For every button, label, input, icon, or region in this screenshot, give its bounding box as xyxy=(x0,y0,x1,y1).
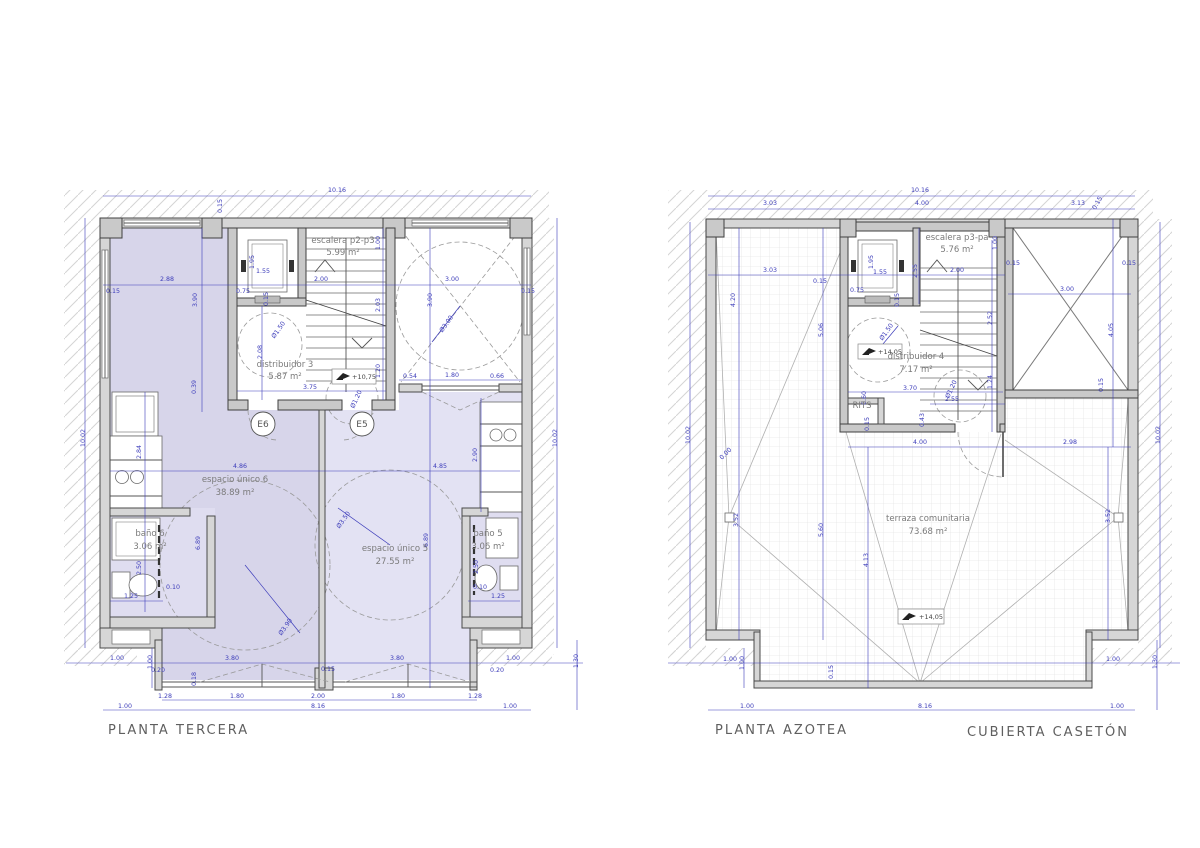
dimension-text: 10.16 xyxy=(911,187,929,194)
dimension-text: 0.15 xyxy=(813,278,827,285)
dimension-text: 1.20 xyxy=(375,364,382,378)
dimension-text: 0.75 xyxy=(850,287,864,294)
dimension-text: 1.00 xyxy=(1110,703,1124,710)
dimension-text: 1.00 xyxy=(118,703,132,710)
dimension-text: 10.02 xyxy=(1155,426,1162,444)
dimension-text: 0.66 xyxy=(490,373,504,380)
dimension-text: 3.90 xyxy=(192,293,199,307)
dimension-text: 2.50 xyxy=(136,561,143,575)
dimension-text: 1.25 xyxy=(491,593,505,600)
dimension-text: 2.00 xyxy=(314,276,328,283)
room-label: espacio único 6 xyxy=(202,475,268,485)
dimension-text: 1.24 xyxy=(987,375,994,389)
dimension-text: 10.02 xyxy=(552,429,559,447)
dimension-text: 4.85 xyxy=(433,463,447,470)
dimension-text: 1.00 xyxy=(739,656,746,670)
dimension-text: 1.00 xyxy=(723,656,737,663)
roof-drain-right xyxy=(1114,513,1123,522)
dimension-text: 3.03 xyxy=(763,267,777,274)
dimension-text: 3.52 xyxy=(1105,509,1112,523)
dimension-text: 0.15 xyxy=(321,666,335,673)
room-label: baño 6 xyxy=(135,529,164,539)
room-label: 27.55 m² xyxy=(376,557,415,567)
level-value: +10,75 xyxy=(352,373,376,381)
dimension-text: 0.15 xyxy=(1006,260,1020,267)
dimension-text: 4.00 xyxy=(913,439,927,446)
dimension-text: 3.52 xyxy=(733,513,740,527)
room-label: 5.87 m² xyxy=(268,372,301,382)
room-label: 38.89 m² xyxy=(216,488,255,498)
dimension-text: 2.84 xyxy=(136,445,143,459)
entry-label-e5: E5 xyxy=(356,420,367,430)
dimension-text: 10.02 xyxy=(80,429,87,447)
dimension-text: 4.13 xyxy=(863,553,870,567)
dimension-text: Ø1.50 xyxy=(878,322,895,342)
dimension-text: 1.80 xyxy=(445,372,459,379)
room-label: escalera p2-p3 xyxy=(311,236,374,246)
dimension-text: 8.16 xyxy=(918,703,932,710)
room-label: distribuidor 4 xyxy=(888,352,945,362)
dimension-text: 1.00 xyxy=(1106,656,1120,663)
dimension-text: 2.03 xyxy=(375,298,382,312)
dimension-text: 5.06 xyxy=(818,323,825,337)
dimension-text: 1.00 xyxy=(506,655,520,662)
room-label: 7.17 m² xyxy=(899,365,932,375)
dimension-text: 3.13 xyxy=(1071,200,1085,207)
dimension-text: 1.80 xyxy=(391,693,405,700)
dimension-text: 0.15 xyxy=(1122,260,1136,267)
dimension-text: 0.15 xyxy=(864,417,871,431)
plan-title-azotea: PLANTA AZOTEA xyxy=(715,723,848,738)
dimension-text: 1.55 xyxy=(256,268,270,275)
dimension-text: 3.00 xyxy=(1060,286,1074,293)
dimension-text: 2.55 xyxy=(912,264,919,278)
level-marker-azotea-2: +14,05 xyxy=(898,609,944,624)
room-label: escalera p3-pa xyxy=(925,233,988,243)
room-label: 3.06 m² xyxy=(471,542,504,552)
dimension-text: 2.00 xyxy=(311,693,325,700)
dimension-text: 4.05 xyxy=(1108,323,1115,337)
dimension-text: 0.15 xyxy=(106,288,120,295)
plan-title-caseton: CUBIERTA CASETÓN xyxy=(967,724,1129,740)
dimension-text: 3.75 xyxy=(303,384,317,391)
dimension-text: 0.15 xyxy=(521,288,535,295)
room-label: 3.06 m² xyxy=(133,542,166,552)
dimension-text: 6.89 xyxy=(195,536,202,550)
architectural-plan-canvas: E6 E5 +10,75 xyxy=(0,0,1200,848)
dimension-text: 10.02 xyxy=(685,426,692,444)
dimension-text: 0.15 xyxy=(1098,378,1105,392)
dimension-text: 1.95 xyxy=(249,255,256,269)
dimension-text: 3.03 xyxy=(763,200,777,207)
dimension-text: 0.15 xyxy=(828,665,835,679)
dimension-text: 0.15 xyxy=(217,199,224,213)
entry-label-e6: E6 xyxy=(257,420,269,430)
dimension-text: 3.80 xyxy=(390,655,404,662)
dimension-text: 2.50 xyxy=(473,560,480,574)
dimension-text: 4.86 xyxy=(233,463,247,470)
kitchen-right xyxy=(480,402,522,512)
dimension-text: 0.20 xyxy=(490,667,504,674)
room-label: 5.76 m² xyxy=(940,245,973,255)
dimension-text: 1.25 xyxy=(124,593,138,600)
dimension-text: 1.00 xyxy=(110,655,124,662)
dimension-text: 1.95 xyxy=(868,255,875,269)
room-label: distribuidor 3 xyxy=(257,360,314,370)
dimension-text: 0.54 xyxy=(403,373,417,380)
dimension-text: 1.00 xyxy=(992,236,999,250)
dimension-text: 1.55 xyxy=(873,269,887,276)
room-label: 73.68 m² xyxy=(909,527,948,537)
dimension-text: 3.00 xyxy=(445,276,459,283)
room-label: baño 5 xyxy=(473,529,502,539)
dimension-text: 1.00 xyxy=(503,703,517,710)
dimension-text: 1.00 xyxy=(375,236,382,250)
dimension-text: 2.90 xyxy=(472,448,479,462)
dimension-text: 2.98 xyxy=(1063,439,1077,446)
dimension-text: 0.43 xyxy=(919,413,926,427)
dimension-text: 0.20 xyxy=(151,667,165,674)
dimension-text: 2.08 xyxy=(257,345,264,359)
dimension-text: 1.28 xyxy=(468,693,482,700)
dimension-text: 0.10 xyxy=(166,584,180,591)
dimension-text: 10.16 xyxy=(328,187,346,194)
dimension-text: 8.16 xyxy=(311,703,325,710)
dimension-text: 1.30 xyxy=(1152,655,1159,669)
level-value: +14,05 xyxy=(919,613,943,621)
room-label: 5.99 m² xyxy=(326,248,359,258)
dimension-text: 1.28 xyxy=(158,693,172,700)
dimension-text: 0.18 xyxy=(191,672,198,686)
floor-plan-sheet: E6 E5 +10,75 xyxy=(0,0,1200,848)
dimension-text: 1.80 xyxy=(230,693,244,700)
plan-title-tercera: PLANTA TERCERA xyxy=(108,723,249,738)
dimension-text: 2.52 xyxy=(987,311,994,325)
room-label: terraza comunitaria xyxy=(886,514,970,524)
dimension-text: 3.70 xyxy=(903,385,917,392)
level-marker-p3: +10,75 xyxy=(332,369,376,384)
plan-tercera: E6 E5 +10,75 xyxy=(64,187,583,738)
dimension-text: 0.39 xyxy=(191,380,198,394)
dimension-text: 3.90 xyxy=(427,293,434,307)
dimension-text: 0.75 xyxy=(236,288,250,295)
dimension-text: 0.15 xyxy=(894,293,901,307)
room-label: espacio único 5 xyxy=(362,544,428,554)
room-label: RITS xyxy=(852,401,871,411)
dimension-text: 2.88 xyxy=(160,276,174,283)
plan-azotea: +14,05 +14,05 xyxy=(668,187,1180,740)
dimension-text: 4.20 xyxy=(730,293,737,307)
dimension-text: 5.60 xyxy=(818,523,825,537)
dimension-text: 0.15 xyxy=(263,292,270,306)
dimension-text: 3.80 xyxy=(225,655,239,662)
dimension-text: 0.10 xyxy=(473,584,487,591)
dimension-text: 4.00 xyxy=(915,200,929,207)
dimension-text: 1.00 xyxy=(740,703,754,710)
dimension-text: 1.30 xyxy=(573,654,580,668)
caseton-roof-x xyxy=(1005,219,1138,398)
dimension-text: 2.00 xyxy=(950,267,964,274)
